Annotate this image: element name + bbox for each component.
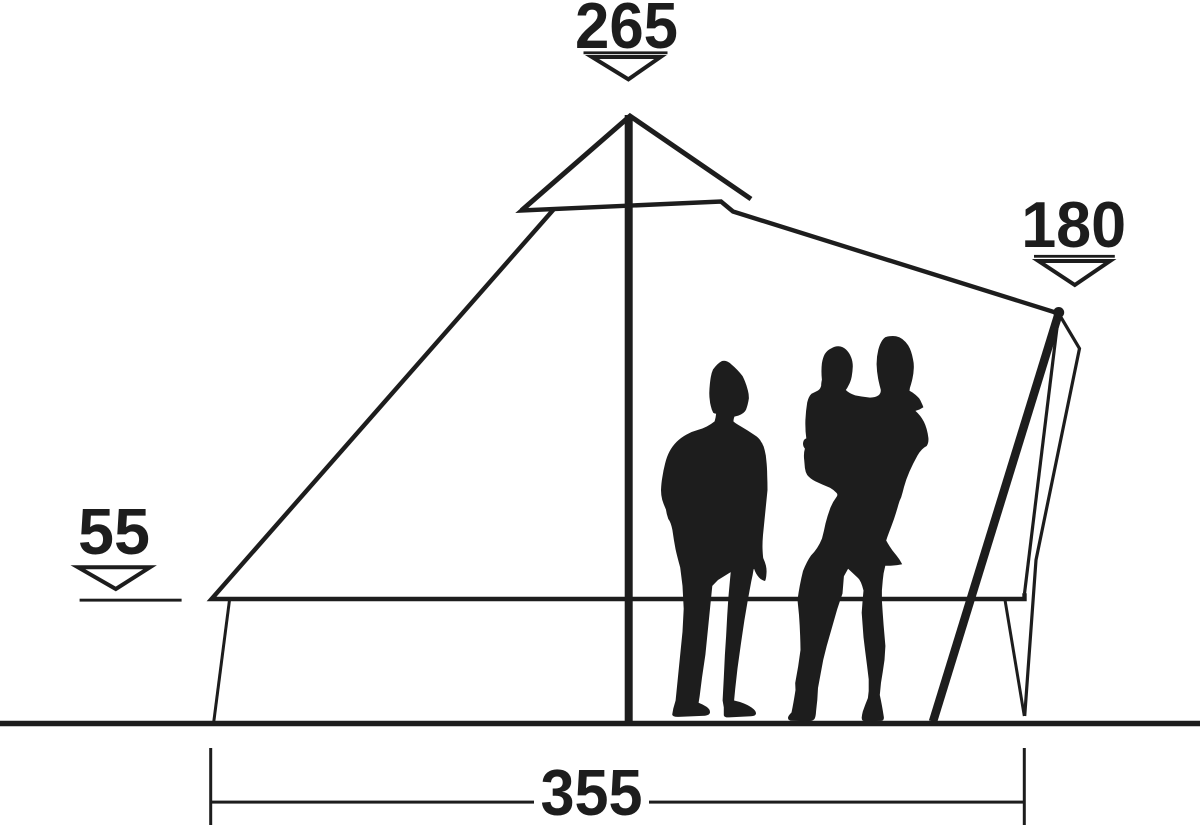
svg-text:355: 355	[541, 756, 643, 829]
svg-text:180: 180	[1021, 188, 1126, 261]
svg-text:55: 55	[78, 495, 150, 568]
